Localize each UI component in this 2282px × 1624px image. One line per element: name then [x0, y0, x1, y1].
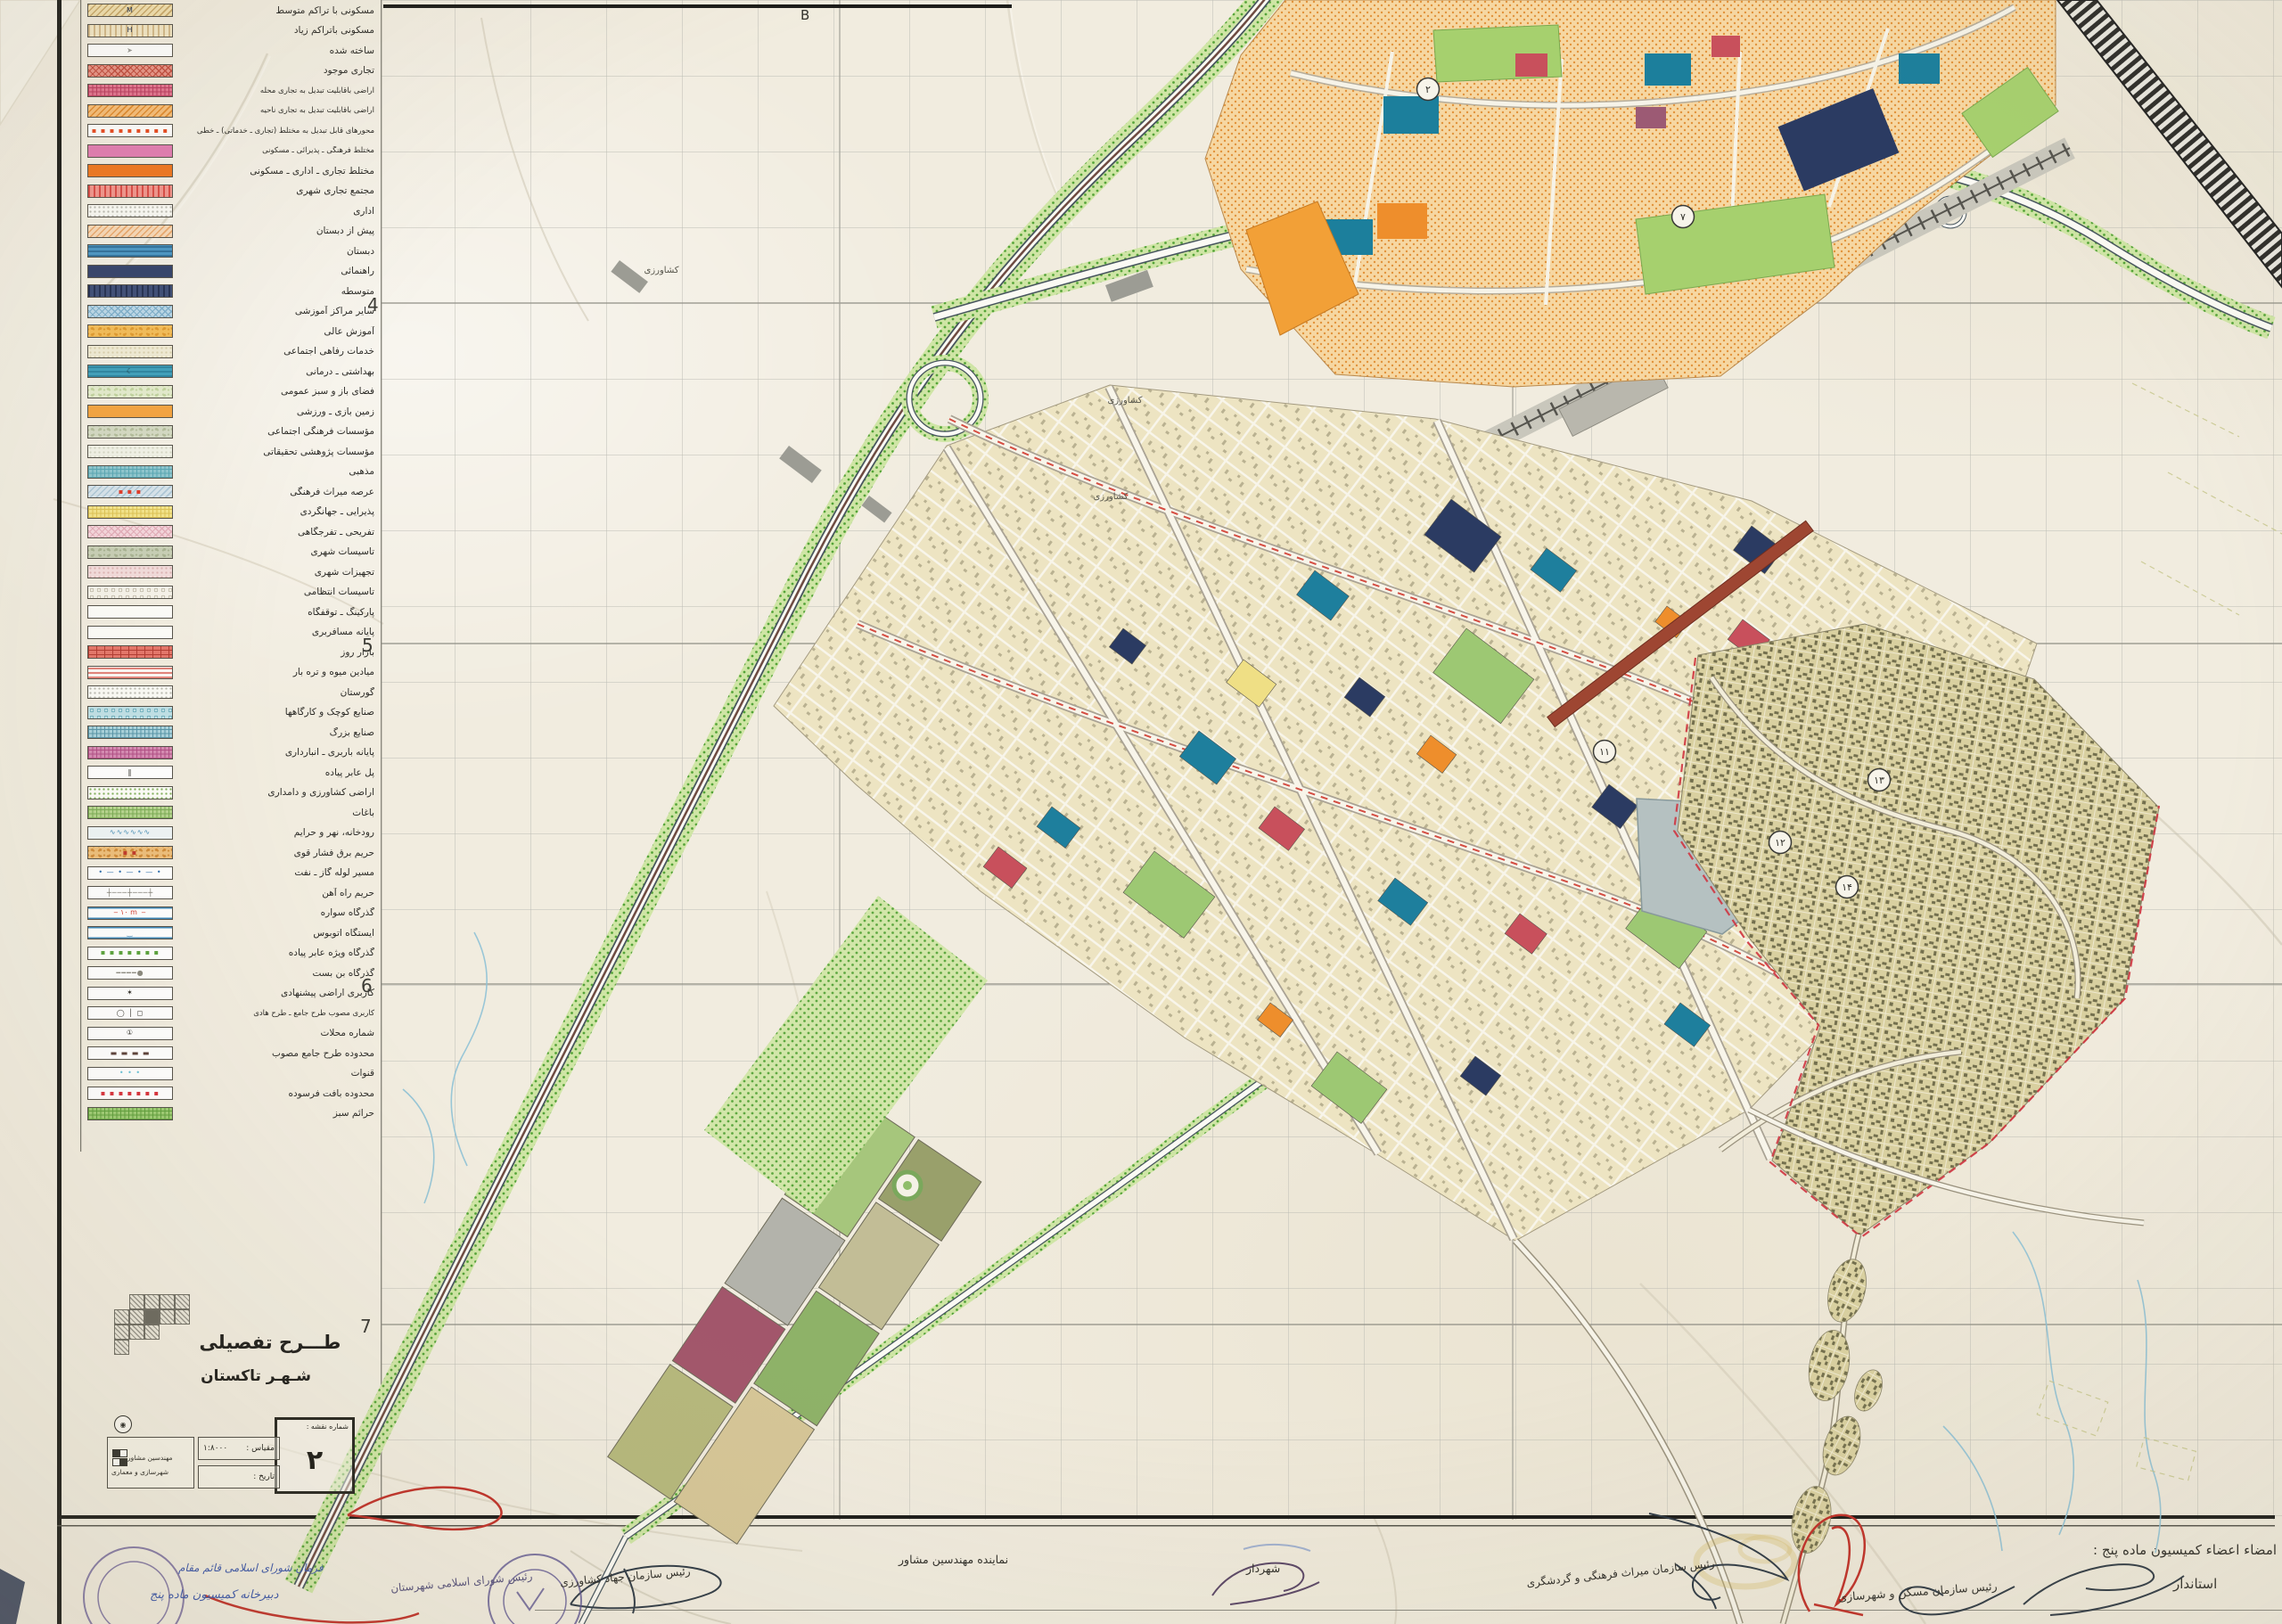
legend-label: بازار روز [173, 647, 383, 658]
legend-row: حرائم سبز [87, 1107, 383, 1120]
commission-header: امضاء اعضاء کمیسیون ماده پنج : [2093, 1542, 2277, 1558]
legend-label: اراضی باقابلیت تبدیل به تجاری محله [173, 86, 383, 95]
legend-row: پیش از دبستان [87, 225, 383, 238]
legend-swatch [87, 645, 173, 659]
grid-ref-7: 7 [360, 1316, 372, 1337]
legend-swatch [87, 284, 173, 298]
legend-label: پیش از دبستان [173, 226, 383, 236]
grid-ref-5: 5 [362, 635, 373, 656]
legend-swatch-symbol: ∿∿∿∿∿∿ [88, 827, 172, 839]
legend-label: خدمات رفاهی اجتماعی [173, 346, 383, 357]
index-map-cell [175, 1340, 190, 1355]
index-map-cell [114, 1325, 129, 1340]
legend-label: محدوده بافت فرسوده [173, 1088, 383, 1099]
secretariat-note: دبیرخانه کمیسیون ماده پنج [150, 1588, 278, 1602]
legend-label: مسکونی با تراکم متوسط [173, 5, 383, 16]
legend-row: میادین میوه و تره بار [87, 666, 383, 679]
legend-label: متوسطه [173, 286, 383, 297]
grid-ref-col-b: B [800, 7, 809, 23]
legend-swatch [87, 586, 173, 599]
legend-swatch [87, 385, 173, 398]
legend-label: تاسیسات انتظامی [173, 586, 383, 597]
legend-label: فضای باز و سبز عمومی [173, 386, 383, 397]
legend-swatch [87, 64, 173, 78]
legend-row: • • •قنوات [87, 1067, 383, 1080]
legend-label: پذیرایی ـ جهانگردی [173, 506, 383, 517]
legend-row: پارکینگ ـ توقفگاه [87, 605, 383, 619]
legend-swatch [87, 545, 173, 559]
legend-label: مؤسسات فرهنگی اجتماعی [173, 426, 383, 437]
consultant-box: مهندسین مشاور شهرسازی و معماری [107, 1437, 194, 1489]
index-map-cell [144, 1340, 160, 1355]
index-map-cell [129, 1309, 144, 1325]
legend-label: تجاری موجود [173, 65, 383, 76]
legend-label: گذرگاه ویژه عابر پیاده [173, 947, 383, 958]
legend-label: حریم راه آهن [173, 888, 383, 898]
legend-row: ①شماره محلات [87, 1027, 383, 1040]
index-map-cell [144, 1325, 160, 1340]
annotation-agriculture: کشاورزی [644, 266, 678, 275]
legend-row: آموزش عالی [87, 324, 383, 338]
legend-swatch: ✶ [87, 987, 173, 1000]
legend-label: باغات [173, 808, 383, 818]
legend-swatch: ‒ ۱۰ m ‒ [87, 906, 173, 920]
index-map-cell [114, 1309, 129, 1325]
legend-row: دبستان [87, 244, 383, 258]
legend-row: باغات [87, 806, 383, 819]
legend-label: شماره محلات [173, 1028, 383, 1038]
legend-row: مختلط فرهنگی ـ پذیرائی ـ مسکونی [87, 144, 383, 158]
nbhd-num: ۱۳ [1874, 775, 1884, 786]
index-map-cell [160, 1340, 175, 1355]
legend-swatch [87, 685, 173, 699]
legend-row: راهنمائی [87, 265, 383, 278]
legend-swatch-symbol: • — • — • — • [88, 867, 172, 879]
legend-label: آموزش عالی [173, 326, 383, 337]
index-map-cell [175, 1325, 190, 1340]
legend-label: گذرگاه سواره [173, 907, 383, 918]
index-map-cell [129, 1340, 144, 1355]
scale-box: مقیاس : ۱:۸۰۰۰ [198, 1437, 280, 1460]
legend-row: تاسیسات انتظامی [87, 586, 383, 599]
date-label: تاریخ : [253, 1472, 275, 1481]
legend-swatch [87, 305, 173, 318]
grid-ref-4: 4 [367, 294, 379, 316]
legend: Mمسکونی با تراکم متوسطHمسکونی باتراکم زی… [87, 4, 383, 1127]
legend-row: زمین بازی ـ ورزشی [87, 405, 383, 418]
legend-row: پایانه مسافربری [87, 626, 383, 639]
annotation-agriculture: کشاورزی [1093, 492, 1128, 502]
legend-swatch: ① [87, 1027, 173, 1040]
legend-swatch: ┼───┼───┼ [87, 886, 173, 899]
legend-row: Hمسکونی باتراکم زیاد [87, 24, 383, 37]
legend-label: سایر مراکز آموزشی [173, 306, 383, 316]
legend-swatch-symbol: ┼───┼───┼ [88, 887, 172, 898]
legend-swatch [87, 225, 173, 238]
legend-label: عرصه میراث فرهنگی [173, 487, 383, 497]
legend-label: حریم برق فشار قوی [173, 848, 383, 858]
sheet-number-box: شماره نقشه : ۲ [275, 1417, 355, 1494]
legend-label: کاربری اراضی پیشنهادی [173, 988, 383, 998]
map-title-line2: شـهـر تاکستان [189, 1367, 323, 1385]
legend-swatch [87, 144, 173, 158]
legend-label: کاربری مصوب طرح جامع ـ طرح هادی [173, 1009, 383, 1018]
legend-label: مختلط تجاری ـ اداری ـ مسکونی [173, 166, 383, 176]
legend-row: Mمسکونی با تراکم متوسط [87, 4, 383, 17]
legend-row: مذهبی [87, 465, 383, 479]
nbhd-num: ۱۲ [1775, 837, 1785, 849]
legend-label: صنایع کوچک و کارگاهها [173, 707, 383, 718]
legend-label: میادین میوه و تره بار [173, 667, 383, 677]
legend-row: سایر مراکز آموزشی [87, 305, 383, 318]
legend-label: مجتمع تجاری شهری [173, 185, 383, 196]
stamp-circular-mid [488, 1554, 581, 1624]
legend-row: پذیرایی ـ جهانگردی [87, 505, 383, 519]
consultant-logo-icon: ◉ [114, 1415, 132, 1433]
legend-row: فضای باز و سبز عمومی [87, 385, 383, 398]
sheet-number-value: ۲ [277, 1420, 352, 1491]
legend-row: ▪ ▪ ▪ ▪ ▪ ▪ ▪گذرگاه ویژه عابر پیاده [87, 947, 383, 960]
legend-swatch [87, 806, 173, 819]
legend-label: قنوات [173, 1068, 383, 1079]
legend-swatch [87, 525, 173, 538]
legend-swatch: ▪ ▪ ▪ ▪ ▪ ▪ ▪ [87, 947, 173, 960]
legend-swatch-symbol: ✶ [88, 988, 172, 999]
legend-swatch [87, 104, 173, 118]
legend-swatch: M [87, 4, 173, 17]
role-governor: استاندار [2173, 1576, 2217, 1592]
legend-row: ▪ ▪ ▪عرصه میراث فرهنگی [87, 485, 383, 498]
legend-label: رودخانه، نهر و حرایم [173, 827, 383, 838]
legend-swatch [87, 244, 173, 258]
legend-label: گذرگاه بن بست [173, 968, 383, 979]
legend-swatch [87, 605, 173, 619]
legend-swatch [87, 746, 173, 759]
legend-swatch [87, 505, 173, 519]
legend-label: اراضی باقابلیت تبدیل به تجاری ناحیه [173, 106, 383, 115]
legend-label: پل عابر پیاده [173, 767, 383, 778]
legend-row: تفریحی ـ تفرجگاهی [87, 525, 383, 538]
legend-row: اداری [87, 204, 383, 217]
legend-swatch [87, 324, 173, 338]
legend-row: ▪ ▪ ▪ ▪ ▪ ▪ ▪ ▪ ▪محورهای قابل تبدیل به م… [87, 124, 383, 137]
grid-ref-6: 6 [361, 975, 373, 997]
legend-swatch: ━━━━● [87, 966, 173, 980]
scale-value: ۱:۸۰۰۰ [203, 1444, 227, 1453]
legend-row: ➤ساخته شده [87, 44, 383, 57]
nbhd-num: ۱۴ [1842, 882, 1852, 893]
scale-label: مقیاس : [246, 1444, 275, 1453]
legend-row: پایانه باربری ـ انبارداری [87, 746, 383, 759]
legend-row: ☾بهداشتی ـ درمانی [87, 365, 383, 378]
legend-label: تاسیسات شهری [173, 546, 383, 557]
legend-swatch-symbol: ▬ ▬ ▬ ▬ [88, 1047, 172, 1059]
legend-swatch [87, 445, 173, 458]
legend-swatch-symbol: ◯ │ ◻ [88, 1007, 172, 1019]
legend-row: صنایع کوچک و کارگاهها [87, 706, 383, 719]
legend-label: اداری [173, 206, 383, 217]
legend-label: ایستگاه اتوبوس [173, 928, 383, 939]
legend-swatch-symbol: ‿ [88, 927, 172, 939]
legend-row: • — • — • — •مسیر لوله گاز ـ نفت [87, 866, 383, 880]
legend-swatch: ☾ [87, 365, 173, 378]
legend-swatch-symbol: ▪ ▪ ▪ ▪ ▪ ▪ ▪ [88, 947, 172, 959]
legend-swatch: ▪ ▪ ▪ ▪ ▪ ▪ ▪ [87, 1087, 173, 1100]
legend-swatch: ▪ ▪ ▪ [87, 485, 173, 498]
legend-swatch-symbol: H [88, 25, 172, 37]
legend-row: تجاری موجود [87, 64, 383, 78]
legend-label: مؤسسات پژوهشی تحقیقاتی [173, 447, 383, 457]
index-map-cell [144, 1309, 160, 1325]
legend-swatch [87, 185, 173, 198]
date-box: تاریخ : [198, 1465, 280, 1489]
index-map-cell [114, 1340, 129, 1355]
legend-swatch [87, 565, 173, 578]
legend-swatch: • — • — • — • [87, 866, 173, 880]
consultant-squares-icon [114, 1449, 127, 1466]
legend-swatch: ➤ [87, 44, 173, 57]
legend-swatch-symbol: ➤ [88, 45, 172, 56]
legend-row: بازار روز [87, 645, 383, 659]
map-title-line1: طـــرح تفصیلی [194, 1332, 346, 1353]
stamp-circular-left [84, 1547, 184, 1624]
legend-swatch-symbol: ▪ ▪ ▪ [88, 486, 172, 497]
legend-label: اراضی کشاورزی و دامداری [173, 787, 383, 798]
legend-row: ‖پل عابر پیاده [87, 766, 383, 779]
legend-row: تجهیزات شهری [87, 565, 383, 578]
legend-label: راهنمائی [173, 266, 383, 276]
legend-row: ┼───┼───┼حریم راه آهن [87, 886, 383, 899]
legend-swatch-symbol: • • • [88, 1068, 172, 1079]
legend-row: ‒ ۱۰ m ‒گذرگاه سواره [87, 906, 383, 920]
legend-swatch [87, 405, 173, 418]
legend-swatch [87, 726, 173, 739]
legend-swatch [87, 164, 173, 177]
index-map-cell [144, 1294, 160, 1309]
legend-label: پایانه مسافربری [173, 627, 383, 637]
legend-label: تفریحی ـ تفرجگاهی [173, 527, 383, 537]
legend-row: مختلط تجاری ـ اداری ـ مسکونی [87, 164, 383, 177]
legend-row: خدمات رفاهی اجتماعی [87, 345, 383, 358]
legend-swatch [87, 786, 173, 800]
legend-swatch: ▪ ▪ [87, 846, 173, 859]
legend-row: ∿∿∿∿∿∿رودخانه، نهر و حرایم [87, 826, 383, 840]
index-map-cell [160, 1325, 175, 1340]
legend-swatch-symbol: ▪ ▪ [88, 847, 172, 858]
legend-label: حرائم سبز [173, 1108, 383, 1119]
annotation-agriculture: کشاورزی [1107, 396, 1142, 406]
legend-swatch [87, 265, 173, 278]
legend-row: اراضی باقابلیت تبدیل به تجاری محله [87, 84, 383, 97]
legend-row: ━━━━●گذرگاه بن بست [87, 966, 383, 980]
nbhd-num: ۷ [1680, 211, 1686, 223]
legend-label: مذهبی [173, 466, 383, 477]
legend-swatch [87, 345, 173, 358]
legend-label: پایانه باربری ـ انبارداری [173, 747, 383, 758]
nbhd-num: ۱۱ [1599, 746, 1610, 758]
signature-governor [2023, 1564, 2184, 1615]
legend-label: بهداشتی ـ درمانی [173, 366, 383, 377]
legend-row: ‿ایستگاه اتوبوس [87, 926, 383, 939]
legend-swatch [87, 626, 173, 639]
legend-row: ◯ │ ◻کاربری مصوب طرح جامع ـ طرح هادی [87, 1006, 383, 1020]
legend-swatch: ∿∿∿∿∿∿ [87, 826, 173, 840]
legend-row: اراضی باقابلیت تبدیل به تجاری ناحیه [87, 104, 383, 118]
legend-label: دبستان [173, 246, 383, 257]
legend-label: صنایع بزرگ [173, 727, 383, 738]
legend-row: مؤسسات پژوهشی تحقیقاتی [87, 445, 383, 458]
legend-row: گورستان [87, 685, 383, 699]
legend-swatch-symbol: M [88, 4, 172, 16]
legend-swatch: ▪ ▪ ▪ ▪ ▪ ▪ ▪ ▪ ▪ [87, 124, 173, 137]
index-map-cell [175, 1309, 190, 1325]
index-map-cell [175, 1294, 190, 1309]
edge-mark [0, 1569, 25, 1624]
legend-row: ▪ ▪حریم برق فشار قوی [87, 846, 383, 859]
legend-swatch-symbol: ▪ ▪ ▪ ▪ ▪ ▪ ▪ [88, 1087, 172, 1099]
map-sheet: ۲ ۷ ۱۱ ۱۲ ۱۳ ۱۴ کشاورزی کشاورزی [0, 0, 2282, 1624]
legend-label: محدوده طرح جامع مصوب [173, 1048, 383, 1059]
legend-swatch-symbol: ━━━━● [88, 967, 172, 979]
consultant-line1: مهندسین مشاور [127, 1454, 173, 1462]
legend-swatch: ◯ │ ◻ [87, 1006, 173, 1020]
legend-label: محورهای قابل تبدیل به مختلط (تجاری ـ خدم… [173, 127, 383, 135]
legend-swatch-symbol: ‖ [88, 767, 172, 778]
legend-swatch [87, 465, 173, 479]
legend-row: متوسطه [87, 284, 383, 298]
index-map-cell [129, 1294, 144, 1309]
role-consultant-rep: نماینده مهندسین مشاور [899, 1553, 1008, 1566]
handwriting-note: فرمان شورای اسلامی قائم مقام [178, 1562, 324, 1574]
legend-label: گورستان [173, 687, 383, 698]
legend-swatch [87, 1107, 173, 1120]
legend-swatch [87, 666, 173, 679]
legend-swatch [87, 425, 173, 439]
consultant-line2: شهرسازی و معماری [111, 1468, 168, 1476]
legend-row: صنایع بزرگ [87, 726, 383, 739]
role-mayor: شهردار [1246, 1562, 1280, 1575]
legend-label: مسیر لوله گاز ـ نفت [173, 867, 383, 878]
legend-row: تاسیسات شهری [87, 545, 383, 559]
index-map-cell [114, 1294, 129, 1309]
index-map-cell [160, 1294, 175, 1309]
legend-swatch-symbol: ☾ [88, 365, 172, 377]
legend-swatch-symbol: ‒ ۱۰ m ‒ [88, 907, 172, 919]
legend-swatch [87, 706, 173, 719]
legend-row: ▪ ▪ ▪ ▪ ▪ ▪ ▪محدوده بافت فرسوده [87, 1087, 383, 1100]
index-map-cell [129, 1325, 144, 1340]
legend-swatch: ‖ [87, 766, 173, 779]
legend-swatch: • • • [87, 1067, 173, 1080]
legend-swatch: ‿ [87, 926, 173, 939]
legend-label: پارکینگ ـ توقفگاه [173, 607, 383, 618]
legend-row: مجتمع تجاری شهری [87, 185, 383, 198]
legend-swatch: H [87, 24, 173, 37]
legend-label: ساخته شده [173, 45, 383, 56]
legend-row: اراضی کشاورزی و دامداری [87, 786, 383, 800]
legend-label: تجهیزات شهری [173, 567, 383, 578]
legend-label: مختلط فرهنگی ـ پذیرائی ـ مسکونی [173, 146, 383, 155]
legend-row: ✶کاربری اراضی پیشنهادی [87, 987, 383, 1000]
sheet-index-map [114, 1294, 190, 1355]
legend-row: ▬ ▬ ▬ ▬محدوده طرح جامع مصوب [87, 1046, 383, 1060]
nbhd-num: ۲ [1425, 84, 1431, 95]
index-map-cell [160, 1309, 175, 1325]
legend-row: مؤسسات فرهنگی اجتماعی [87, 425, 383, 439]
legend-swatch-symbol: ① [88, 1028, 172, 1039]
legend-swatch-symbol: ▪ ▪ ▪ ▪ ▪ ▪ ▪ ▪ ▪ [88, 125, 172, 136]
legend-swatch [87, 84, 173, 97]
legend-swatch [87, 204, 173, 217]
legend-label: مسکونی باتراکم زیاد [173, 25, 383, 36]
legend-label: زمین بازی ـ ورزشی [173, 406, 383, 417]
legend-swatch: ▬ ▬ ▬ ▬ [87, 1046, 173, 1060]
